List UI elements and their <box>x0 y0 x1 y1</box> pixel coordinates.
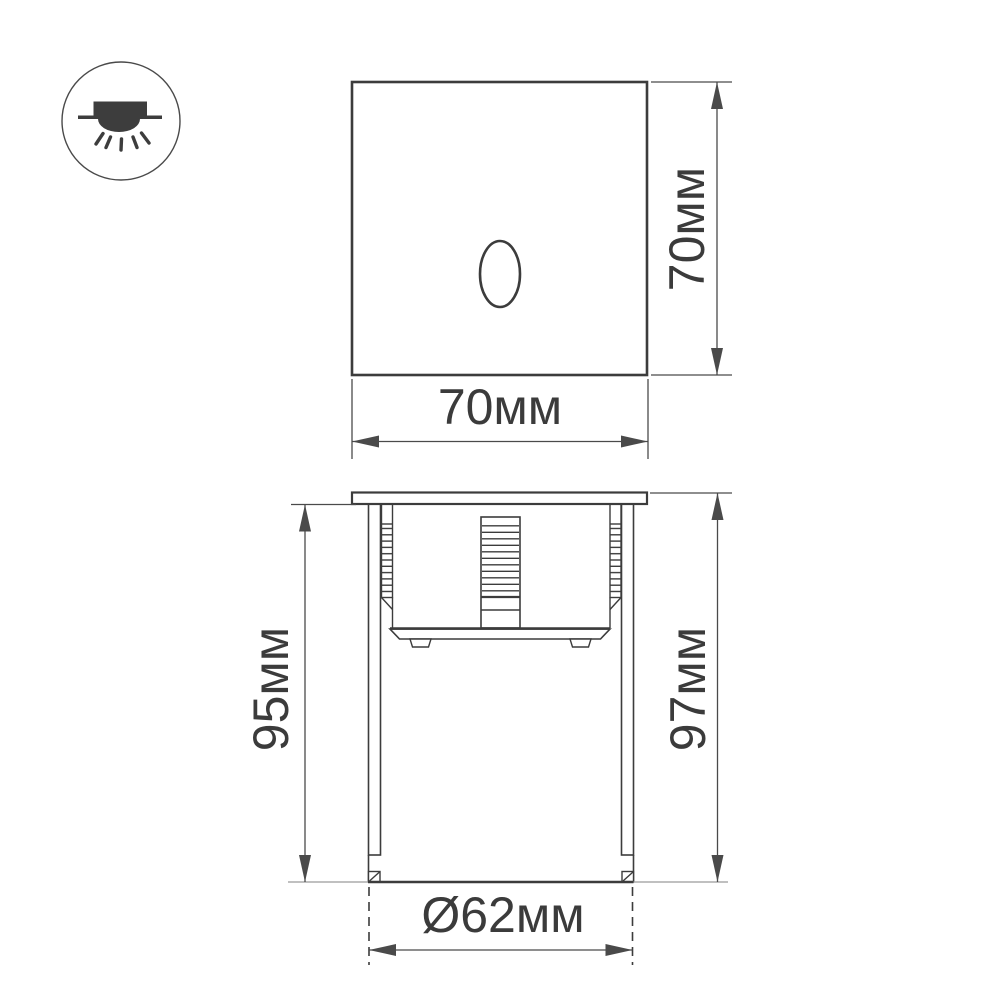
dim-cutout-diameter: Ø62мм <box>369 887 633 956</box>
dim-front-width: 70мм <box>352 379 648 459</box>
flange <box>352 493 647 505</box>
spring-clip-left <box>382 504 393 628</box>
arrowhead-up <box>712 493 724 520</box>
clip-rungs <box>611 527 621 594</box>
housing-wall-left <box>369 504 381 882</box>
icon-ceiling-line <box>78 116 162 120</box>
clip-chamfer <box>382 598 393 610</box>
spring-clip-right <box>610 504 621 628</box>
icon-lamp-body <box>94 102 148 118</box>
arrowhead-right <box>606 944 633 956</box>
faceplate-outline <box>352 82 647 375</box>
arrowhead-left <box>369 944 396 956</box>
technical-drawing-canvas: 70мм 70мм <box>0 0 1000 1000</box>
arrowhead-up <box>711 82 723 109</box>
bottom-bezel <box>390 629 610 639</box>
arrowhead-left <box>352 436 379 448</box>
dim-front-height: 70мм <box>651 82 732 375</box>
foot-tab-left <box>410 639 431 647</box>
clip-rungs <box>382 527 392 594</box>
arrowhead-right <box>621 436 648 448</box>
wall-hatched <box>622 504 634 855</box>
mount-type-icon <box>62 62 180 180</box>
cutout-diameter-label: Ø62мм <box>421 887 584 943</box>
foot-tab-right <box>570 639 591 647</box>
front-height-label: 70мм <box>659 167 715 291</box>
front-width-label: 70мм <box>438 379 562 435</box>
lamp-module-bottom <box>390 629 610 647</box>
arrowhead-down <box>711 348 723 375</box>
overall-depth-label: 97мм <box>660 627 716 751</box>
arrowhead-down <box>712 855 724 882</box>
front-view <box>352 82 647 375</box>
housing-wall-right <box>622 504 634 882</box>
clip-chamfer <box>610 598 621 610</box>
housing-depth-label: 95мм <box>243 627 299 751</box>
dim-housing-depth: 95мм <box>243 505 356 883</box>
center-column <box>481 517 520 628</box>
dim-overall-depth: 97мм <box>650 493 732 882</box>
spec-drawing-page: 70мм 70мм <box>0 0 1000 1000</box>
column-ribs <box>482 520 519 597</box>
wall-hatched <box>369 504 381 855</box>
arrowhead-up <box>299 505 311 532</box>
arrowhead-down <box>299 855 311 882</box>
